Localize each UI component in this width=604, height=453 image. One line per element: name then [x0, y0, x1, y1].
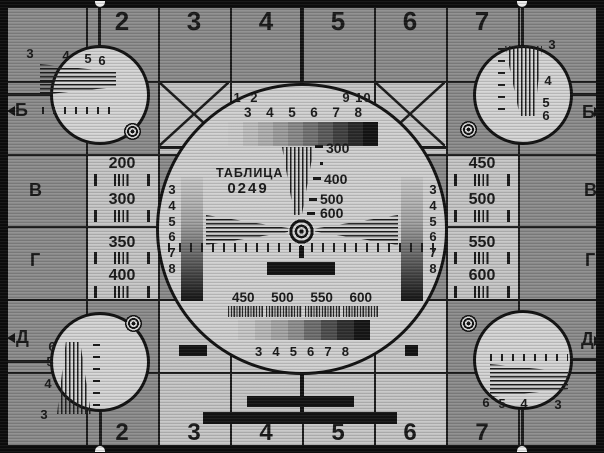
column-label-bottom: 2 — [86, 421, 158, 445]
freq-value: 550 — [446, 235, 518, 251]
grayscale-step-label: 9 10 — [338, 91, 376, 104]
burst-pattern — [94, 210, 150, 222]
row-letter-right: Д — [581, 330, 594, 348]
burst-pattern — [94, 252, 150, 264]
sync-bar-upper — [247, 396, 354, 407]
freq-label: 600 — [349, 291, 372, 305]
grayscale-step-labels-top: 3 4 5 6 7 8 — [244, 106, 362, 120]
convergence-line — [573, 93, 596, 96]
freq-value: 500 — [446, 192, 518, 208]
grayscale-step-label: 8 — [354, 106, 362, 120]
burst-pattern — [454, 174, 510, 186]
column-label-bottom: 4 — [230, 421, 302, 445]
fan-label: 5 — [81, 52, 95, 65]
row-letter-left: В — [29, 181, 42, 199]
burst-pattern — [454, 252, 510, 264]
grayscale-step-label: 4 — [266, 106, 274, 120]
scale-number: 4 — [164, 199, 180, 212]
grayscale-step-label: 3 — [244, 106, 252, 120]
reference-black-rect — [179, 345, 207, 356]
grayscale-step-label: 4 — [272, 345, 279, 358]
freq-value: 400 — [86, 268, 158, 284]
test-card: 2 3 4 5 6 7 2 3 4 5 6 7 Б В Г Д Б В Г Д … — [0, 0, 604, 453]
row-letter-left: Г — [30, 251, 40, 269]
fan-label: 5 — [43, 355, 57, 368]
fan-label: 3 — [545, 38, 559, 51]
scale-number: 6 — [164, 230, 180, 243]
column-label-bottom: 3 — [158, 421, 230, 445]
inner-scale-right: 3 4 5 6 7 8 — [425, 183, 441, 275]
scale-number: 8 — [164, 262, 180, 275]
fan-label: 4 — [517, 397, 531, 410]
column-label-bottom: 7 — [446, 421, 518, 445]
row-letter-right: Г — [585, 251, 595, 269]
bullseye-target — [124, 123, 141, 140]
table-title: ТАБЛИЦА — [216, 167, 280, 180]
wedge-tick — [315, 145, 323, 148]
table-code: 0249 — [216, 181, 280, 196]
scale-number: 4 — [425, 199, 441, 212]
scale-number: 5 — [425, 215, 441, 228]
sync-bar-lower — [203, 412, 397, 424]
fan-tick-scale — [490, 354, 568, 361]
grayscale-step-label: 7 — [332, 106, 340, 120]
column-label-top: 6 — [374, 8, 446, 34]
fan-tick-scale — [42, 107, 114, 114]
wedge-label: 400 — [324, 172, 358, 186]
bullseye-target — [460, 121, 477, 138]
grayscale-step-label: 8 — [342, 345, 349, 358]
fan-label: 3 — [23, 47, 37, 60]
center-line-top — [300, 8, 303, 85]
scale-number: 5 — [164, 215, 180, 228]
fan-label: 5 — [495, 397, 509, 410]
reference-white-window-bar — [267, 262, 335, 275]
fan-tick-scale — [498, 48, 505, 114]
fan-label: 4 — [41, 377, 55, 390]
wedge-tick — [309, 198, 317, 201]
column-label-bottom: 5 — [302, 421, 374, 445]
scale-number: 6 — [425, 230, 441, 243]
grayscale-step-label: 3 — [255, 345, 262, 358]
inner-scale-left: 3 4 5 6 7 8 — [164, 183, 180, 275]
freq-label: 500 — [271, 291, 294, 305]
column-label-top: 2 — [86, 8, 158, 34]
burst-pattern — [454, 210, 510, 222]
grayscale-step-labels-bottom: 3 4 5 6 7 8 — [255, 345, 349, 358]
convergence-line — [521, 8, 524, 45]
wedge-tick — [320, 162, 323, 165]
grayscale-step-label: 1 2 — [230, 91, 264, 104]
wedge-tick — [307, 212, 315, 215]
bullseye-target — [460, 315, 477, 332]
grayscale-step-label: 5 — [288, 106, 296, 120]
grayscale-step-label: 6 — [310, 106, 318, 120]
edge-notch — [95, 1, 105, 7]
freq-label: 450 — [232, 291, 255, 305]
convergence-line — [573, 358, 596, 361]
freq-value: 600 — [446, 268, 518, 284]
gradient-column-left — [181, 177, 203, 301]
column-label-top: 7 — [446, 8, 518, 34]
row-letter-left: Б — [15, 101, 28, 119]
freq-value: 350 — [86, 235, 158, 251]
scale-number: 8 — [425, 262, 441, 275]
edge-notch — [517, 446, 527, 452]
convergence-line — [521, 410, 524, 445]
bottom-freq-labels: 450 500 550 600 — [232, 291, 372, 305]
fan-label: 3 — [37, 408, 51, 421]
grayscale-step-label: 6 — [307, 345, 314, 358]
fan-label: 6 — [45, 340, 59, 353]
wedge-label: 300 — [326, 141, 360, 155]
fan-label: 6 — [95, 54, 109, 67]
row-letter-right: Б — [582, 103, 595, 121]
burst-pattern — [454, 286, 510, 298]
column-label-top: 5 — [302, 8, 374, 34]
fan-label: 6 — [539, 109, 553, 122]
column-label-top: 4 — [230, 8, 302, 34]
fan-tick-scale — [93, 344, 100, 414]
gradient-column-right — [401, 177, 423, 301]
convergence-line — [98, 8, 101, 45]
edge-arrow-icon — [594, 107, 602, 117]
burst-pattern — [94, 174, 150, 186]
fan-label: 4 — [59, 49, 73, 62]
column-label-top: 3 — [158, 8, 230, 34]
center-bullseye — [288, 218, 315, 245]
scale-number: 3 — [164, 183, 180, 196]
fan-label: 6 — [479, 396, 493, 409]
freq-label: 550 — [310, 291, 333, 305]
center-marker — [299, 246, 304, 258]
edge-arrow-icon — [594, 336, 602, 346]
wedge-label: 600 — [320, 206, 354, 220]
column-label-bottom: 6 — [374, 421, 446, 445]
reference-black-rect — [405, 345, 418, 356]
row-letter-left: Д — [16, 328, 29, 346]
fan-label: 4 — [541, 74, 555, 87]
grayscale-bar-bottom — [238, 320, 370, 340]
definition-stripe-bar — [228, 306, 378, 317]
wedge-label: 500 — [320, 192, 354, 206]
freq-value: 300 — [86, 192, 158, 208]
edge-notch — [517, 1, 527, 7]
fan-label: 3 — [551, 398, 565, 411]
wedge-tick — [313, 177, 321, 180]
edge-arrow-icon — [7, 106, 15, 116]
edge-arrow-icon — [7, 333, 15, 343]
grayscale-step-label: 7 — [324, 345, 331, 358]
center-line-bottom — [300, 374, 304, 414]
edge-notch — [95, 446, 105, 452]
grayscale-step-label: 5 — [290, 345, 297, 358]
burst-pattern — [94, 286, 150, 298]
freq-value: 200 — [86, 156, 158, 172]
convergence-line — [99, 412, 102, 445]
row-letter-right: В — [584, 181, 597, 199]
freq-value: 450 — [446, 156, 518, 172]
bullseye-target — [125, 315, 142, 332]
scale-number: 3 — [425, 183, 441, 196]
